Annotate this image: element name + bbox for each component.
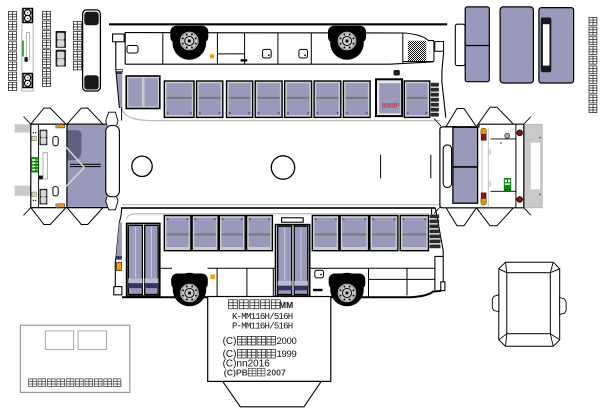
svg-text:P-MM116H/516H: P-MM116H/516H <box>232 322 293 332</box>
svg-text:1999: 1999 <box>277 349 297 360</box>
svg-text:(C): (C) <box>223 336 237 347</box>
svg-text:MM: MM <box>279 300 293 310</box>
svg-text:2000: 2000 <box>277 336 297 347</box>
svg-text:(C)PB: (C)PB <box>224 368 248 378</box>
svg-text:2007: 2007 <box>267 368 286 378</box>
